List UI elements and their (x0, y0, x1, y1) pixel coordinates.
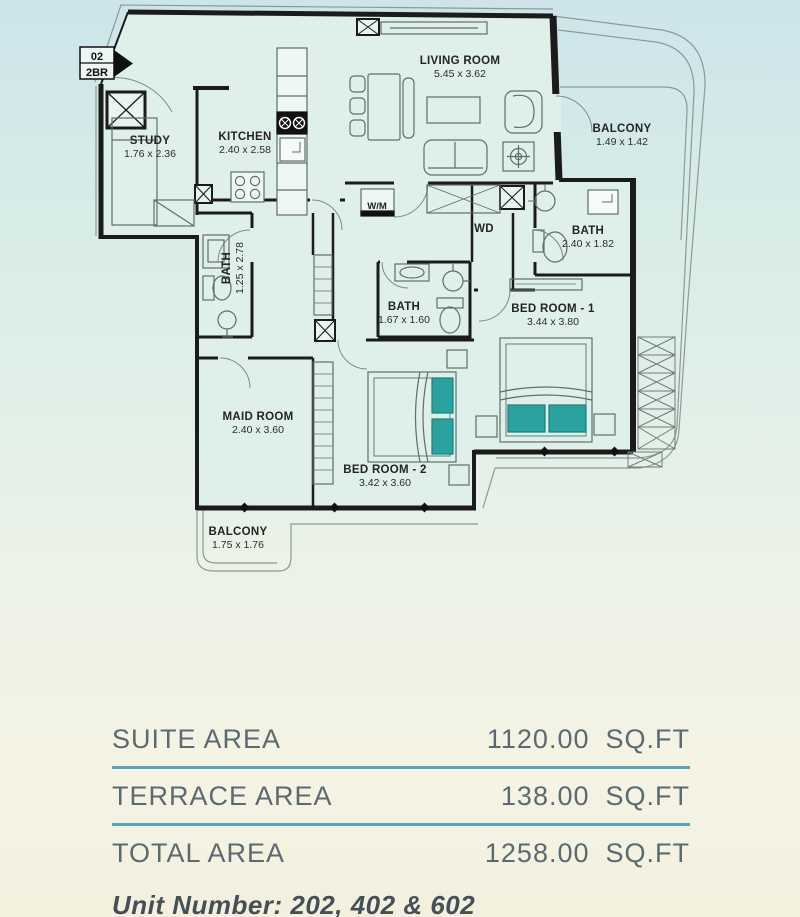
svg-text:BATH: BATH (221, 252, 233, 284)
unit-number-line: Unit Number: 202, 402 & 602 (112, 890, 690, 917)
svg-text:LIVING ROOM: LIVING ROOM (420, 55, 501, 67)
label-kitchen: KITCHEN 2.40 x 2.58 (218, 131, 271, 156)
duct-box-corridor-icon (500, 186, 524, 209)
svg-text:BED ROOM - 1: BED ROOM - 1 (511, 303, 595, 315)
unit-badge-number: 02 (91, 51, 103, 63)
label-dryer: WD (474, 223, 494, 235)
label-balcony-bottom: BALCONY 1.75 x 1.76 (209, 526, 268, 551)
svg-text:BATH: BATH (388, 301, 420, 313)
elevator-shaft-icon (107, 92, 145, 128)
svg-text:BATH: BATH (572, 225, 604, 237)
svg-text:2.40 x 3.60: 2.40 x 3.60 (232, 424, 284, 436)
duct-box-hall-icon (315, 320, 335, 341)
svg-text:BED ROOM - 2: BED ROOM - 2 (343, 464, 426, 476)
terrace-area-unit: SQ.FT (606, 781, 691, 812)
label-balcony-top: BALCONY 1.49 x 1.42 (593, 123, 652, 148)
svg-text:MAID ROOM: MAID ROOM (222, 411, 293, 423)
svg-text:BALCONY: BALCONY (593, 123, 652, 135)
total-area-value: 1258.00 (485, 838, 590, 869)
svg-text:STUDY: STUDY (130, 135, 171, 147)
area-summary-table: SUITE AREA 1120.00 SQ.FT TERRACE AREA 13… (112, 712, 690, 917)
terrace-area-label: TERRACE AREA (112, 781, 333, 812)
svg-text:1.76 x 2.36: 1.76 x 2.36 (124, 148, 176, 160)
table-row-suite-area: SUITE AREA 1120.00 SQ.FT (112, 712, 690, 766)
total-area-unit: SQ.FT (606, 838, 691, 869)
svg-text:1.25 x 2.78: 1.25 x 2.78 (234, 242, 246, 294)
label-study: STUDY 1.76 x 2.36 (124, 135, 176, 160)
svg-text:1.75 x 1.76: 1.75 x 1.76 (212, 539, 264, 551)
kitchen-hob (231, 172, 264, 202)
svg-text:3.44 x 3.80: 3.44 x 3.80 (527, 316, 579, 328)
label-maid-room: MAID ROOM 2.40 x 3.60 (222, 411, 293, 436)
svg-text:2.40 x 2.58: 2.40 x 2.58 (219, 144, 271, 156)
svg-text:2.40 x 1.82: 2.40 x 1.82 (562, 238, 614, 250)
svg-text:1.49 x 1.42: 1.49 x 1.42 (596, 136, 648, 148)
floorplan-drawing: 02 2BR STUDY 1.76 x 2.36 KITCHEN 2.40 x … (0, 0, 800, 640)
svg-text:5.45 x 3.62: 5.45 x 3.62 (434, 68, 486, 80)
duct-box-kitchen-icon (195, 185, 212, 203)
table-row-terrace-area: TERRACE AREA 138.00 SQ.FT (112, 766, 690, 823)
total-area-label: TOTAL AREA (112, 838, 285, 869)
tv-console-duct-icon (357, 19, 379, 35)
suite-area-label: SUITE AREA (112, 724, 281, 755)
kitchen-counter (277, 48, 307, 215)
svg-text:BALCONY: BALCONY (209, 526, 268, 538)
svg-text:KITCHEN: KITCHEN (218, 131, 271, 143)
suite-area-value: 1120.00 (487, 724, 590, 755)
table-row-total-area: TOTAL AREA 1258.00 SQ.FT (112, 823, 690, 880)
svg-text:1.67 x 1.60: 1.67 x 1.60 (378, 314, 430, 326)
floorplan-page: 02 2BR STUDY 1.76 x 2.36 KITCHEN 2.40 x … (0, 0, 800, 917)
suite-area-unit: SQ.FT (606, 724, 691, 755)
unit-badge-type: 2BR (86, 67, 108, 79)
svg-text:3.42 x 3.60: 3.42 x 3.60 (359, 477, 411, 489)
label-washing-machine: W/M (367, 201, 387, 212)
terrace-area-value: 138.00 (501, 781, 590, 812)
